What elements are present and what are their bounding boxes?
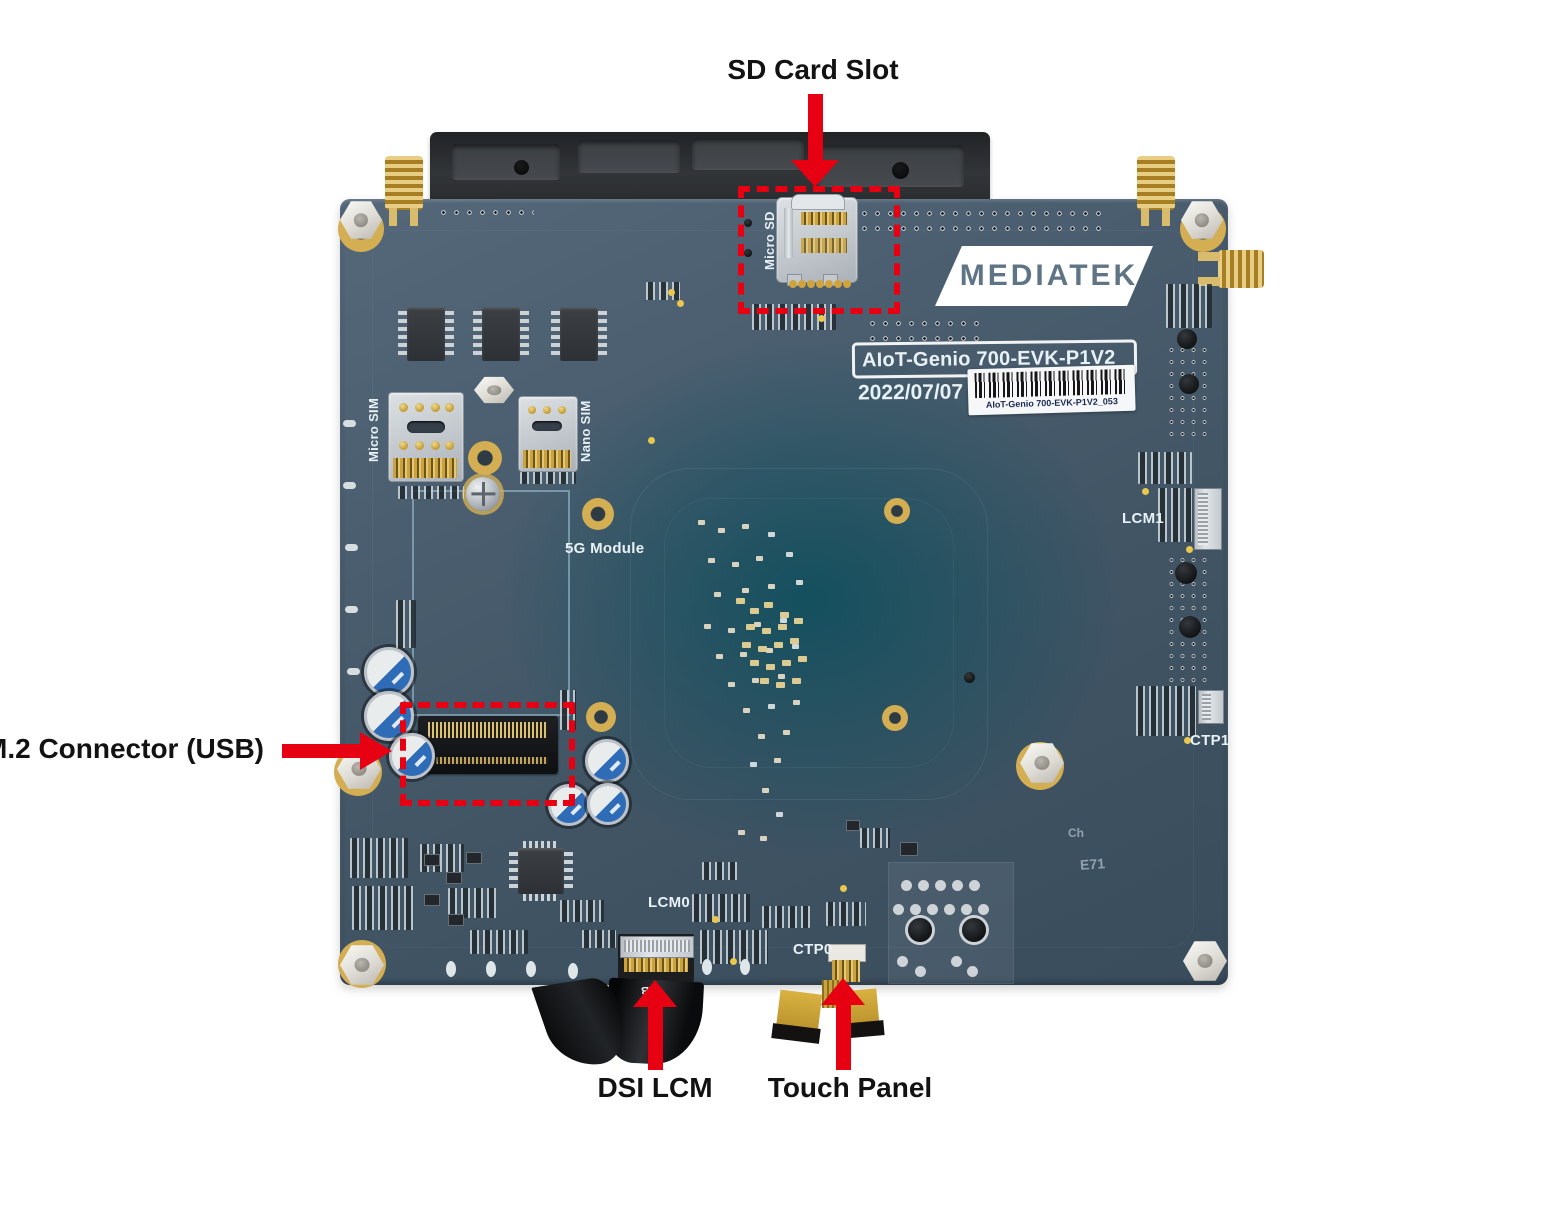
sd-slot-highlight-box: [738, 186, 900, 314]
silk-lcm1: LCM1: [1122, 510, 1164, 527]
smd-cluster: [560, 900, 604, 922]
bar-pocket: [692, 138, 804, 170]
capacitor: [364, 647, 414, 697]
mediatek-logo: MEDIATEK: [930, 246, 1158, 306]
soic-ic: [560, 307, 598, 361]
sim-contact: [445, 403, 454, 412]
gold-ring-pad: [884, 498, 910, 524]
transistor: [448, 914, 464, 926]
ic-pins: [520, 311, 529, 357]
smd-cluster: [350, 838, 408, 878]
ic-pins: [445, 311, 454, 357]
micro-sim-connector: [388, 392, 464, 482]
footprint-hole: [908, 918, 932, 942]
component-cap: [1179, 616, 1201, 638]
ic-pins: [523, 894, 559, 901]
edge-pads-bottom: [446, 961, 456, 977]
sd-arrow-shaft: [808, 94, 823, 162]
sd-card-slot-label: SD Card Slot: [700, 54, 926, 86]
bar-hole: [892, 162, 909, 179]
lcm1-connector: [1194, 488, 1222, 550]
ctp1-connector: [1198, 690, 1224, 724]
nano-sim-connector: [518, 396, 578, 472]
smd-cluster: [826, 902, 866, 926]
smd-cluster: [1136, 686, 1196, 736]
bar-hole: [514, 160, 529, 175]
m2-arrow-head: [360, 732, 392, 770]
qfp-ic: [518, 848, 564, 894]
sma-leg: [1162, 208, 1170, 226]
ic-pins: [598, 311, 607, 357]
sim-contact: [431, 441, 440, 450]
mediatek-logo-text: MEDIATEK: [950, 259, 1138, 293]
lcm0-connector: [620, 936, 694, 958]
edge-pads-left: [343, 420, 356, 427]
smd-cluster: [692, 894, 750, 922]
smd-cluster: [520, 472, 576, 484]
ic-pins: [509, 852, 518, 890]
smd-cluster: [352, 886, 414, 930]
sim-slot: [407, 421, 445, 433]
transistor: [900, 842, 918, 856]
gold-ring-pad: [882, 705, 908, 731]
sim-contact: [528, 406, 536, 414]
sma-connector-top-left: [385, 156, 423, 210]
transistor: [466, 852, 482, 864]
dsi-arrow-head: [633, 980, 677, 1007]
gold-ring-pad: [586, 702, 616, 732]
smd-cluster: [700, 930, 768, 964]
sim-pins: [523, 450, 571, 468]
test-points: [668, 289, 675, 296]
connector-pins: [624, 940, 690, 952]
dsi-lcm-label: DSI LCM: [560, 1072, 750, 1104]
smd-cluster: [582, 930, 616, 948]
annotated-board-photo: MEDIATEK AIoT-Genio 700-EVK-P1V2 2022/07…: [0, 0, 1551, 1232]
component-cap: [1179, 374, 1199, 394]
capacitor: [587, 783, 629, 825]
plastic-bar: [430, 132, 990, 206]
smd-cluster: [470, 930, 528, 954]
silk-ctp1: CTP1: [1190, 732, 1230, 749]
via-hole: [964, 672, 975, 683]
lcm0-contacts: [624, 958, 688, 972]
sma-leg: [389, 208, 397, 226]
5g-module-outline: [412, 490, 570, 716]
sim-contact: [558, 406, 566, 414]
footprint-hole: [962, 918, 986, 942]
sma-leg: [1141, 208, 1149, 226]
transistor: [424, 894, 440, 906]
ic-pins: [473, 311, 482, 357]
footprint-pads: [901, 880, 912, 891]
silk-nano-sim: Nano SIM: [578, 396, 593, 462]
etch-mark-e71: E71: [1079, 855, 1105, 873]
sim-contact: [399, 441, 408, 450]
sim-contact: [445, 441, 454, 450]
sim-pins: [393, 458, 457, 478]
smd-cluster: [702, 862, 740, 880]
capacitor: [585, 739, 629, 783]
ic-pins: [398, 311, 407, 357]
ic-pins: [551, 311, 560, 357]
smd-cluster: [398, 486, 464, 499]
sma-connector-right: [1218, 250, 1264, 288]
sim-contact: [415, 403, 424, 412]
connector-pins: [1198, 493, 1208, 545]
touch-panel-label: Touch Panel: [750, 1072, 950, 1104]
dsi-arrow-shaft: [648, 1006, 663, 1070]
silk-ctp0: CTP0: [793, 941, 833, 958]
component-cap: [1177, 329, 1197, 349]
soic-ic: [407, 307, 445, 361]
gold-ring-pad: [582, 498, 614, 530]
date-label: 2022/07/07: [858, 380, 963, 405]
smd-cluster: [396, 600, 416, 648]
center-smd-field: [698, 520, 705, 525]
connector-pins: [1202, 694, 1211, 720]
barcode-sticker: AIoT-Genio 700-EVK-P1V2_053: [967, 365, 1135, 416]
standoff-hole: [1195, 213, 1209, 227]
transistor: [446, 872, 462, 884]
standoff-hole: [1035, 756, 1050, 770]
gold-ring-pad: [468, 441, 502, 475]
soic-ic: [482, 307, 520, 361]
m2-arrow-shaft: [282, 744, 362, 758]
sma-leg: [410, 208, 418, 226]
sma-connector-top-right: [1137, 156, 1175, 210]
smd-cluster: [1166, 284, 1212, 328]
hex-nut-hole: [487, 385, 501, 395]
sim-contact: [543, 406, 551, 414]
standoff-hole: [354, 213, 368, 227]
barcode-text: AIoT-Genio 700-EVK-P1V2_053: [968, 396, 1135, 411]
transistor: [424, 854, 440, 866]
sim-contact: [431, 403, 440, 412]
sim-contact: [399, 403, 408, 412]
bar-pocket: [578, 140, 680, 173]
ic-pins: [523, 841, 559, 848]
sd-arrow-head: [791, 160, 839, 187]
ic-pins: [564, 852, 573, 890]
component-cap: [1175, 562, 1197, 584]
pin-hole-row: [437, 205, 534, 220]
sim-contact: [415, 441, 424, 450]
bar-pocket: [452, 144, 560, 180]
standoff-hole: [355, 958, 370, 972]
touch-arrow-head: [821, 978, 865, 1005]
silk-lcm0: LCM0: [648, 894, 690, 911]
center-smd-core: [736, 598, 745, 604]
etch-mark-ch: Ch: [1068, 826, 1084, 840]
standoff-hole: [1198, 954, 1213, 968]
m2-highlight-box: [400, 702, 575, 806]
touch-arrow-shaft: [836, 1004, 851, 1070]
smd-cluster: [1138, 452, 1192, 484]
smd-cluster: [762, 906, 810, 928]
barcode: [974, 369, 1128, 398]
dsi-ribbon-cable: MB: [545, 980, 710, 1072]
screw: [466, 477, 500, 511]
bar-pocket: [818, 145, 964, 187]
smd-cluster: [860, 828, 890, 848]
silk-micro-sim: Micro SIM: [366, 392, 381, 462]
m2-connector-label: M.2 Connector (USB): [0, 733, 264, 765]
sma-leg: [1198, 252, 1220, 261]
sim-slot: [532, 421, 562, 431]
silk-5g-module: 5G Module: [565, 540, 644, 557]
transistor: [846, 820, 860, 831]
